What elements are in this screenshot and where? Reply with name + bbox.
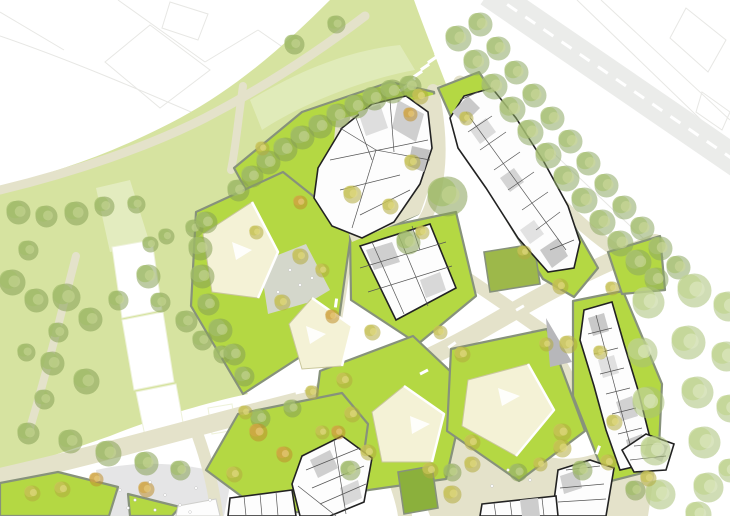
masterplan-canvas (0, 0, 730, 516)
site-plan-svg (0, 0, 730, 516)
